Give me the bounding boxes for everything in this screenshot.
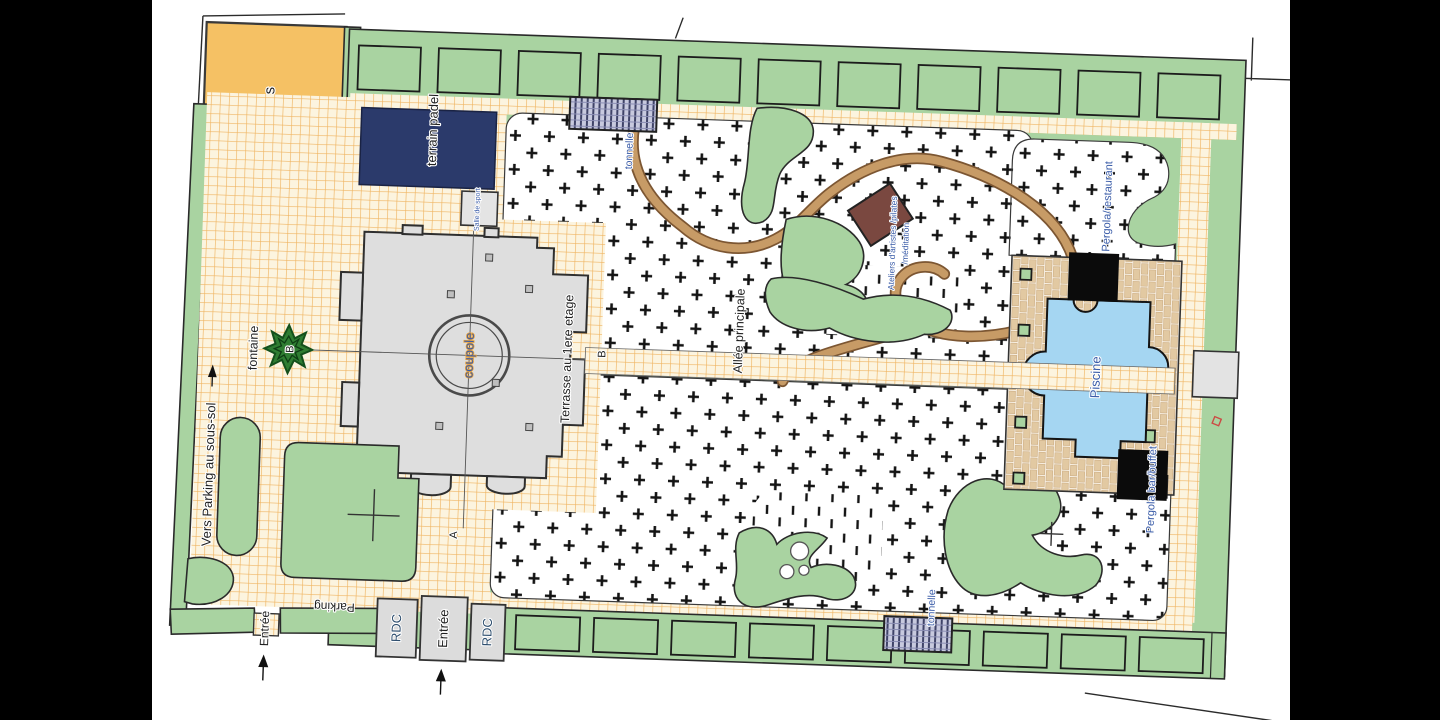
plan-viewer: Terrain de tennis (0, 0, 1440, 720)
planter (1020, 269, 1031, 280)
tonnelle-south (883, 616, 952, 652)
stone (790, 542, 809, 561)
rdc-right-label: RDC (479, 618, 495, 647)
section-marker-b-west: B (284, 345, 296, 353)
planter (1015, 417, 1026, 428)
rdc-left-label: RDC (388, 614, 404, 643)
pergola-restaurant-structure (1068, 252, 1120, 302)
site-plan: Terrain de tennis (168, 1, 1305, 720)
section-marker-b-east: B (596, 350, 608, 358)
tonnelle-north (569, 97, 657, 132)
entree-west-label: Entrée (257, 610, 272, 646)
entree-main-label: Entrée (435, 609, 451, 648)
letterbox-right (1290, 0, 1440, 720)
tonnelle-south-label: tonnelle (925, 589, 938, 626)
parking-label: Parking (314, 599, 355, 614)
padel-label: terrain padel (424, 94, 442, 167)
lawn-pill-west (216, 417, 261, 556)
piscine-label: Piscine (1087, 356, 1103, 398)
east-gate (1192, 351, 1239, 399)
allee-label: Allée principale (731, 288, 748, 373)
salle-de-sport-label: Salle de sport (474, 188, 482, 231)
coupole-label: coupole (460, 332, 477, 378)
fontaine-label: fontaine (246, 325, 262, 370)
lawn-band-southwest-1 (169, 605, 256, 637)
planter (1018, 325, 1029, 336)
section-marker-a: A (448, 530, 460, 538)
stone (780, 564, 794, 578)
stone (799, 565, 809, 575)
letterbox-left (0, 0, 152, 720)
planter (1013, 472, 1024, 483)
ateliers-label-2: /méditation (900, 222, 911, 264)
pergola-buffet-structure (1117, 449, 1169, 501)
tonnelle-north-label: tonnelle (623, 132, 636, 169)
site-plan-canvas: Terrain de tennis (0, 0, 1440, 720)
lawn-square-west (280, 442, 420, 582)
